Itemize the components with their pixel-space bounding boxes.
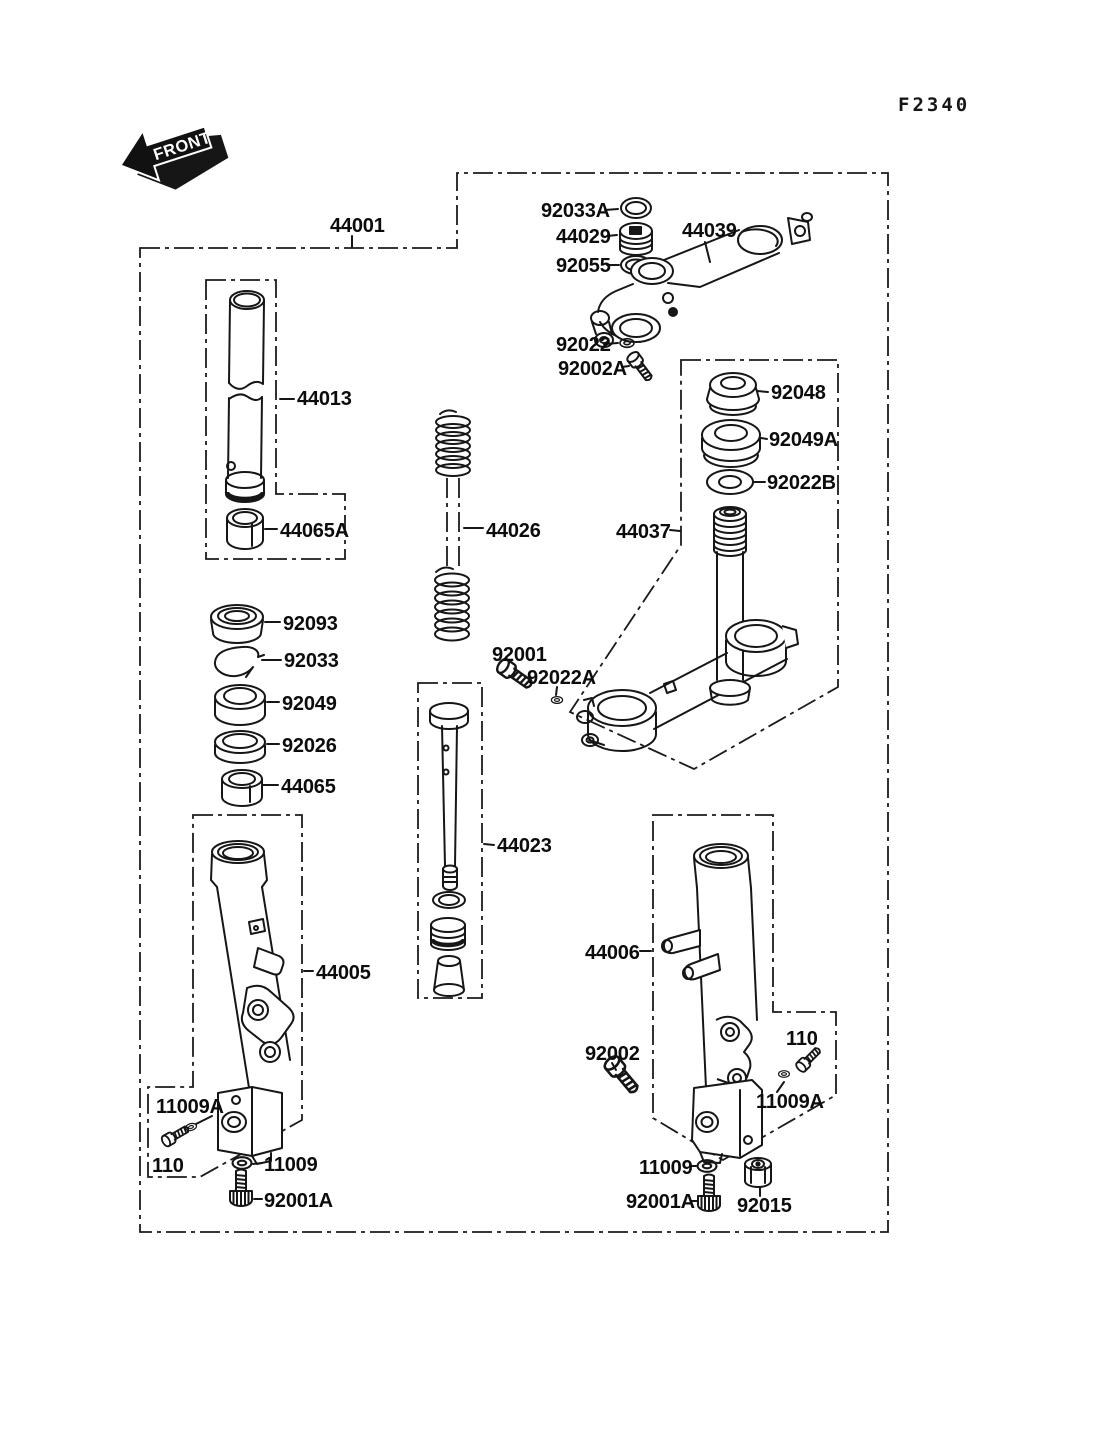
drain-bolt-92001A-left-drawing <box>230 1170 252 1207</box>
callout-92033A: 92033A <box>541 200 610 222</box>
bolt-110-left-drawing <box>160 1123 191 1147</box>
callout-92022: 92022 <box>556 334 611 356</box>
washer-92022A-drawing <box>551 697 562 704</box>
callout-11009-left: 11009 <box>264 1154 318 1176</box>
callout-44029: 44029 <box>556 226 611 248</box>
callout-92048: 92048 <box>771 382 826 404</box>
callout-92033: 92033 <box>284 650 339 672</box>
callout-92022A: 92022A <box>527 667 596 689</box>
top-plug-44029-drawing <box>620 223 652 255</box>
damper-rod-44023-drawing <box>430 703 468 996</box>
drain-bolt-92001A-right-drawing <box>698 1175 720 1212</box>
front-fork-parts-diagram: FRONT F2340 <box>0 0 1096 1434</box>
front-direction-arrow: FRONT <box>112 108 232 203</box>
assembly-boundary-boxes <box>140 173 888 1232</box>
callout-44023: 44023 <box>497 835 552 857</box>
callout-44001: 44001 <box>330 215 385 237</box>
dust-seal-92093-drawing <box>211 605 263 643</box>
callout-11009A-left: 11009A <box>156 1096 224 1118</box>
callout-44006: 44006 <box>585 942 640 964</box>
nut-92015-drawing <box>745 1158 771 1187</box>
callout-92022B: 92022B <box>767 472 836 494</box>
fork-spring-44026-drawing <box>435 410 470 640</box>
bearing-92048-drawing <box>707 373 759 415</box>
callout-92049: 92049 <box>282 693 337 715</box>
callout-92001A-left: 92001A <box>264 1190 333 1212</box>
figure-code: F2340 <box>898 94 970 116</box>
right-fork-leg-44006-drawing <box>662 844 762 1163</box>
callout-92002A: 92002A <box>558 358 627 380</box>
callout-44039: 44039 <box>682 220 737 242</box>
steering-stem-44037-drawing <box>577 507 798 751</box>
inner-tube-44013-drawing <box>226 291 264 502</box>
callout-11009-right: 11009 <box>639 1157 693 1179</box>
callout-92001A-right: 92001A <box>626 1191 695 1213</box>
bushing-44065-drawing <box>222 770 262 806</box>
washer-92022B-drawing <box>707 470 753 494</box>
callout-92093: 92093 <box>283 613 338 635</box>
callout-110-left: 110 <box>152 1155 184 1177</box>
callout-92015: 92015 <box>737 1195 792 1217</box>
callout-44065: 44065 <box>281 776 336 798</box>
washer-11009A-right-drawing <box>779 1071 790 1078</box>
callout-44026: 44026 <box>486 520 541 542</box>
callout-92026: 92026 <box>282 735 337 757</box>
oil-seal-92049-drawing <box>215 685 265 725</box>
callout-44013: 44013 <box>297 388 352 410</box>
callout-44037: 44037 <box>616 521 671 543</box>
washer-11009-left-drawing <box>233 1157 252 1169</box>
callout-11009A-right: 11009A <box>756 1091 824 1113</box>
ring-92026-drawing <box>215 731 265 763</box>
retaining-ring-92033-drawing <box>215 647 264 677</box>
guide-bushing-44065A-drawing <box>227 509 263 549</box>
callout-92001: 92001 <box>492 644 547 666</box>
callout-92055: 92055 <box>556 255 611 277</box>
parts-diagram-page: FRONT F2340 <box>0 0 1096 1434</box>
bolt-92002A-drawing <box>626 350 656 383</box>
callout-44065A: 44065A <box>280 520 349 542</box>
callout-92049A: 92049A <box>769 429 838 451</box>
callout-92002: 92002 <box>585 1043 640 1065</box>
callout-44005: 44005 <box>316 962 371 984</box>
callout-110-right: 110 <box>786 1028 818 1050</box>
seal-92049A-drawing <box>702 420 760 467</box>
oring-92033A-drawing <box>621 198 651 218</box>
outer-assembly-box-44001 <box>140 173 888 1232</box>
